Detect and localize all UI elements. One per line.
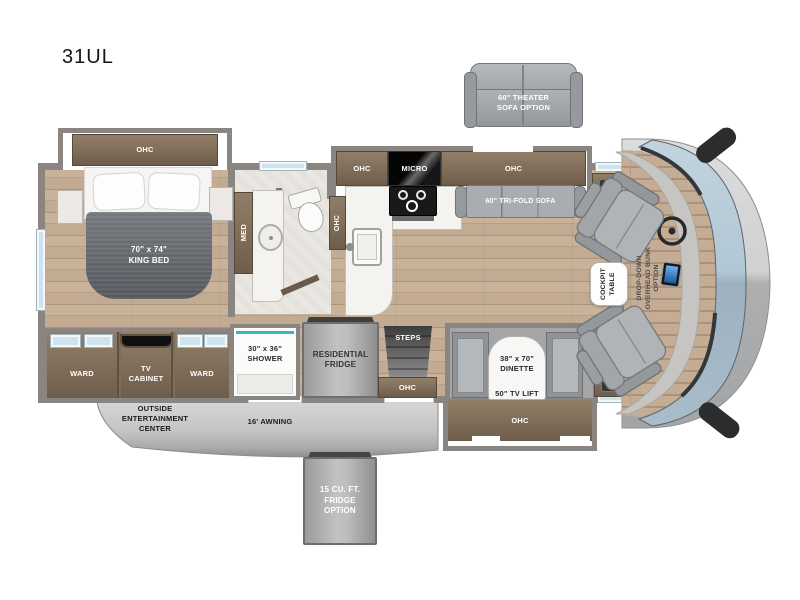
overhead-bunk-option-label: DROP-DOWN OVERHEAD BUNK OPTION bbox=[629, 238, 669, 318]
floorplan-canvas: 31UL OUTSIDE ENTERTAINMENT CENTER 16' AW… bbox=[0, 0, 800, 600]
front-cap bbox=[0, 0, 800, 600]
cockpit-table-label: COCKPIT TABLE bbox=[597, 254, 621, 314]
fridge-option-label: 15 CU. FT. FRIDGE OPTION bbox=[320, 485, 360, 516]
fridge-option: 15 CU. FT. FRIDGE OPTION bbox=[303, 457, 377, 545]
steering-hub bbox=[669, 228, 676, 235]
